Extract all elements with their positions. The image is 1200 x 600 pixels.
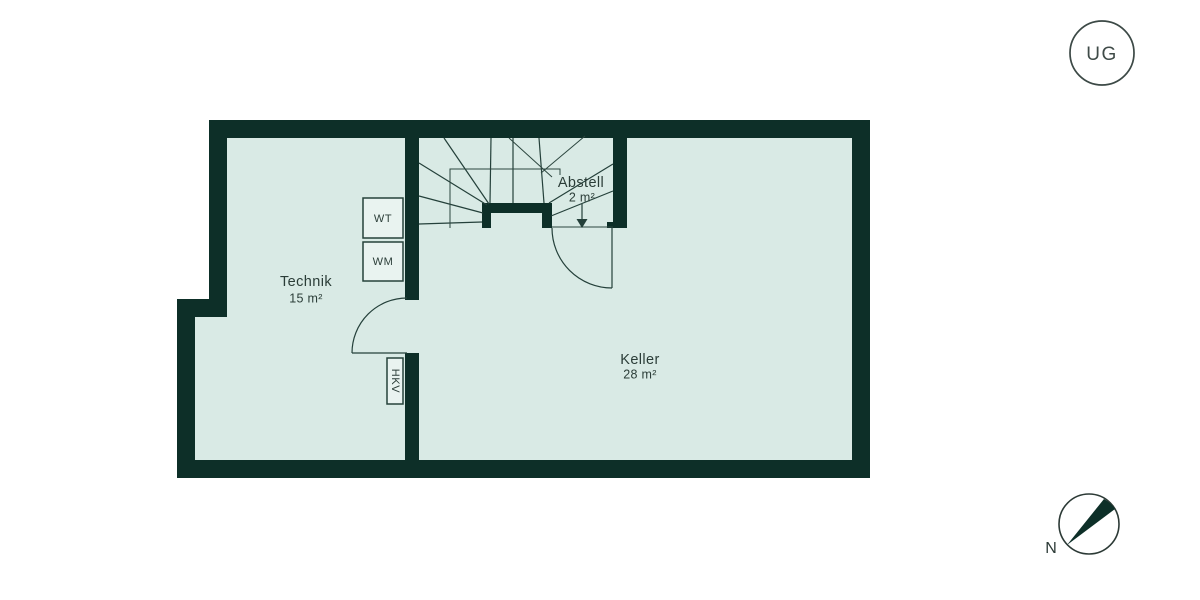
technik-name: Technik <box>280 274 332 290</box>
fixture-wt: WT <box>363 198 403 238</box>
basement-plan: WT WM HKV Technik 15 m² Keller 28 m² Abs… <box>177 120 870 478</box>
fixture-wm: WM <box>363 242 403 281</box>
abstell-name: Abstell <box>558 175 604 191</box>
keller-name: Keller <box>620 352 659 368</box>
room-label-keller: Keller 28 m² <box>620 352 659 381</box>
fixture-wt-label: WT <box>374 213 392 225</box>
level-badge-label: UG <box>1086 44 1118 65</box>
wall-technik-lower <box>405 353 419 460</box>
level-badge: UG <box>1070 21 1134 85</box>
technik-area: 15 m² <box>289 291 322 305</box>
compass-north-label: N <box>1045 540 1057 557</box>
wall-abstell <box>613 138 627 228</box>
floor-plan-page: WT WM HKV Technik 15 m² Keller 28 m² Abs… <box>0 0 1200 600</box>
compass-icon: N <box>1045 494 1119 557</box>
fixture-hkv: HKV <box>387 358 403 404</box>
fixture-hkv-label: HKV <box>389 369 401 393</box>
abstell-area: 2 m² <box>569 190 595 204</box>
floor-plan-drawing: WT WM HKV Technik 15 m² Keller 28 m² Abs… <box>0 0 1200 600</box>
wall-technik-upper <box>405 138 419 300</box>
fixture-wm-label: WM <box>373 256 394 268</box>
keller-area: 28 m² <box>623 367 656 381</box>
